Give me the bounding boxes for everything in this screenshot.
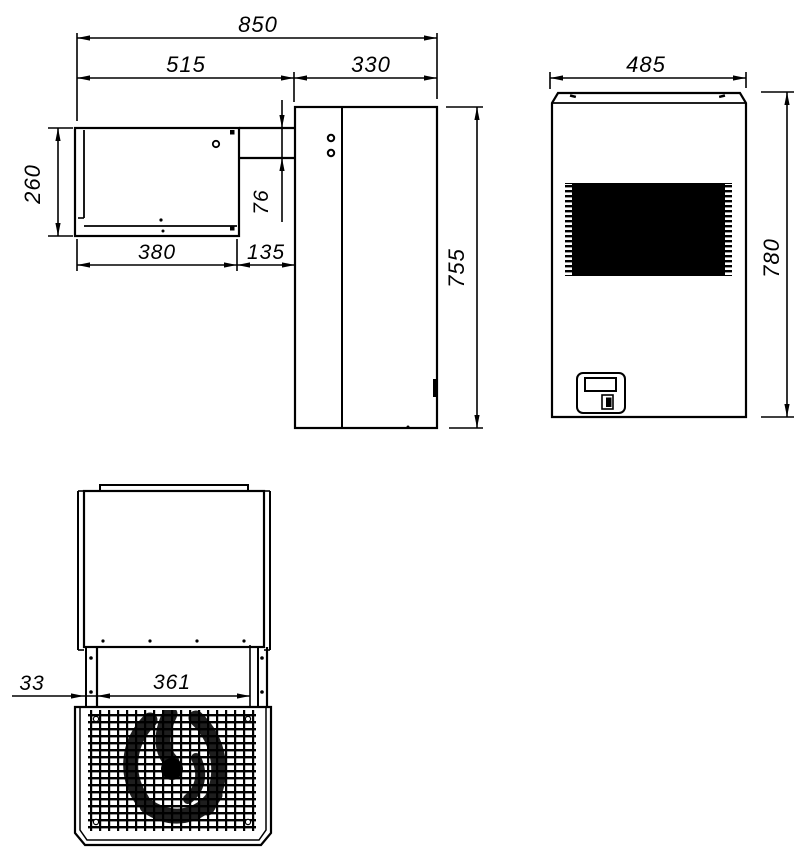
side-bracket-tab [433,379,438,397]
arrow-left [77,35,90,40]
screw-dash [719,94,725,98]
screw-dot [407,426,410,429]
arrow-right [424,75,437,80]
dim-850-label: 850 [238,12,278,37]
arrow-up [474,107,479,120]
dim-330-label: 330 [351,52,391,77]
dim-76 [279,100,284,222]
arrow-left [77,75,90,80]
arrow-down [55,223,60,236]
control-panel [577,373,625,413]
dim-260 [48,128,73,236]
power-button-mark [606,398,612,408]
corner-screw [230,226,235,231]
evaporator-top-body [84,491,264,647]
dim-515-label: 515 [166,52,206,77]
dim-76-label: 76 [250,189,273,214]
grille-mesh [88,710,256,831]
corner-screw [230,130,235,135]
front-view: 485 780 [550,52,794,417]
grille-bolt [93,819,98,824]
screw-dash [570,94,576,98]
dim-33-label: 33 [19,672,44,695]
top-view: 33 361 [12,485,271,845]
arrow-up [279,158,284,171]
dim-260-label: 260 [20,164,45,205]
fin-comb-right [725,184,732,275]
evaporator-hole [213,141,219,147]
dim-135-label: 135 [247,241,285,264]
display-window [585,378,616,391]
screw-dot [89,656,93,660]
condenser-fin-grille [565,183,732,276]
arrow-right [733,75,746,80]
screw-dot [101,639,104,642]
dim-755-label: 755 [444,248,469,288]
arrow-left [77,262,90,267]
arrow-left [294,75,307,80]
arrow-right [424,35,437,40]
mounting-hole [328,150,334,156]
screw-dot [159,218,162,221]
arrow-right [224,262,237,267]
screw-dot [89,690,93,694]
dim-485-label: 485 [626,52,666,77]
screw-dot [260,690,264,694]
arrow-down [279,115,284,128]
arrow-down [474,415,479,428]
screw-dot [162,230,165,233]
side-view: 850 515 330 260 76 380 135 755 [20,12,483,429]
fan-grille [88,710,256,831]
drawing-svg: 850 515 330 260 76 380 135 755 [0,0,808,866]
screw-dot [195,639,198,642]
fin-comb-left [565,184,572,275]
arrow-down [784,404,789,417]
screw-dot [148,639,151,642]
dim-780-label: 780 [759,238,784,278]
dim-361-label: 361 [153,671,191,694]
arrow-up [784,92,789,105]
grille-bolt [245,716,250,721]
fin-block [565,183,732,276]
arrow-up [55,128,60,141]
technical-drawing-canvas: 850 515 330 260 76 380 135 755 [0,0,808,866]
grille-bolt [93,716,98,721]
arrow-left [550,75,563,80]
dim-380-label: 380 [138,241,176,264]
condenser-body-side [295,107,437,428]
grille-bolt [245,819,250,824]
screw-dot [242,639,245,642]
screw-dot [260,656,264,660]
evaporator-box [75,128,239,236]
arrow-right [281,75,294,80]
arrow-right [71,693,84,698]
mounting-hole [328,135,334,141]
arrow-right [237,693,250,698]
